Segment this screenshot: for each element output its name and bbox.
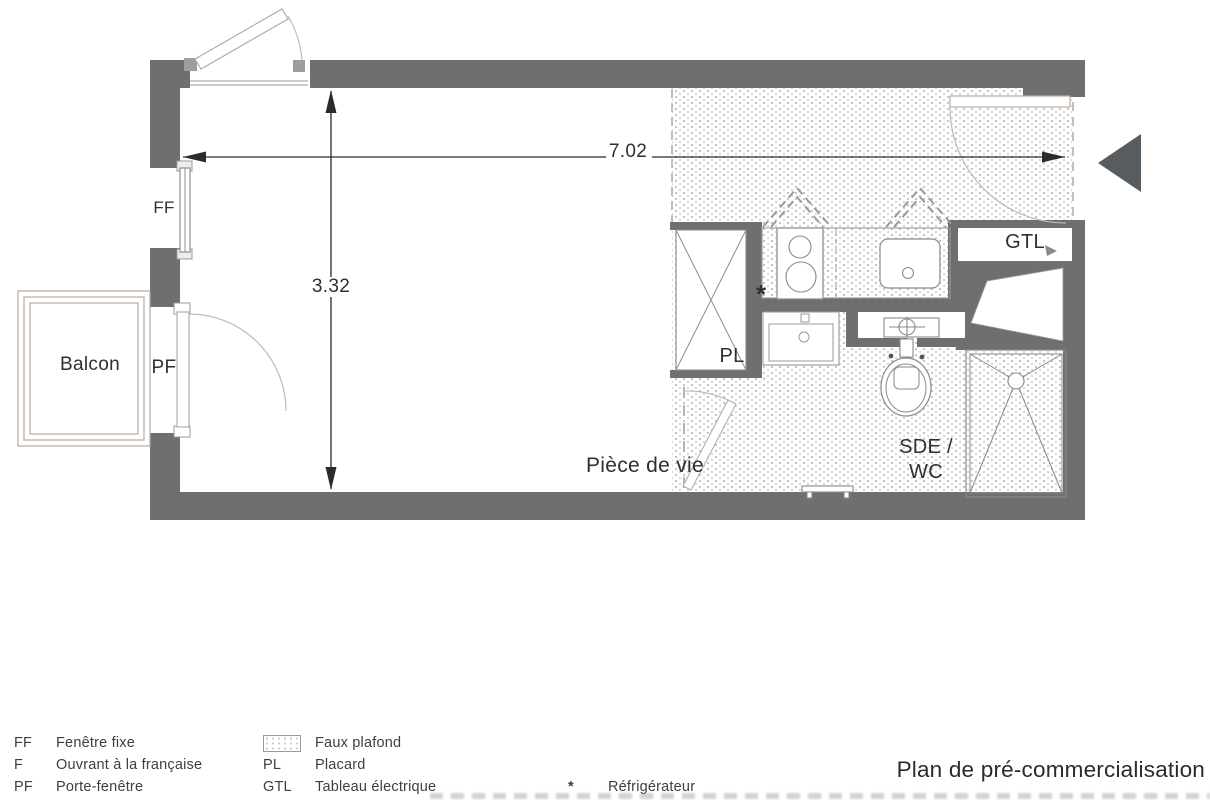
legend-code: FF xyxy=(14,735,56,751)
entrance-door xyxy=(950,96,1073,223)
legend-label: Placard xyxy=(315,757,366,773)
legend-column-2: Faux plafond PL Placard GTL Tableau élec… xyxy=(263,732,436,798)
legend-column-1: FF Fenêtre fixe F Ouvrant à la française… xyxy=(14,732,202,798)
floor-plan-page: Balcon FF PF 7.02 3.32 Pièce de vie PL G… xyxy=(0,0,1210,800)
fridge-marker: * xyxy=(756,280,776,308)
legend-label: Tableau électrique xyxy=(315,779,436,795)
entry-direction-arrow-icon xyxy=(1098,134,1141,192)
room-label-sde-wc: SDE / WC xyxy=(882,435,970,485)
legend-row-f: F Ouvrant à la française xyxy=(14,754,202,776)
legend-row-ff: FF Fenêtre fixe xyxy=(14,732,202,754)
gtl-label: GTL xyxy=(999,232,1051,253)
toilet xyxy=(881,339,931,416)
window-f-top xyxy=(184,9,308,85)
legend-row-pl: PL Placard xyxy=(263,754,436,776)
legend-code: F xyxy=(14,757,56,773)
legend-row-gtl: GTL Tableau électrique xyxy=(263,776,436,798)
legend-label: Fenêtre fixe xyxy=(56,735,135,751)
hood-symbols xyxy=(763,188,954,227)
placard-label: PL xyxy=(711,346,753,367)
door-pf xyxy=(174,303,286,437)
door-pf-label: PF xyxy=(146,358,182,378)
washbasin-vanity xyxy=(763,312,839,365)
sde-wc-line1: SDE / xyxy=(882,435,970,460)
legend-label: Faux plafond xyxy=(315,735,401,751)
legend-row-faux-plafond: Faux plafond xyxy=(263,732,436,754)
window-ff-label: FF xyxy=(147,199,181,217)
radiator xyxy=(802,486,853,498)
room-label-piece-de-vie: Pièce de vie xyxy=(567,455,723,477)
wc-niche xyxy=(858,312,965,338)
faux-plafond-swatch-icon xyxy=(263,735,301,752)
legend-label: Porte-fenêtre xyxy=(56,779,143,795)
page-title: Plan de pré-commercialisation xyxy=(875,757,1205,783)
duct-shaft-opening xyxy=(971,268,1063,341)
dimension-height-label: 3.32 xyxy=(301,277,361,297)
kitchen-sink xyxy=(880,239,940,288)
hob xyxy=(777,228,823,299)
legend-code: GTL xyxy=(263,779,315,795)
plan-linework xyxy=(0,0,1210,800)
legend-label: Ouvrant à la française xyxy=(56,757,202,773)
dimension-width-label: 7.02 xyxy=(597,142,659,162)
legend-code: PF xyxy=(14,779,56,795)
legend-row-pf: PF Porte-fenêtre xyxy=(14,776,202,798)
room-label-balcon: Balcon xyxy=(38,355,142,375)
legend-code: PL xyxy=(263,757,315,773)
truncated-text-artifact xyxy=(430,793,1210,799)
shower-tray xyxy=(966,350,1066,497)
sde-wc-line2: WC xyxy=(882,460,970,485)
